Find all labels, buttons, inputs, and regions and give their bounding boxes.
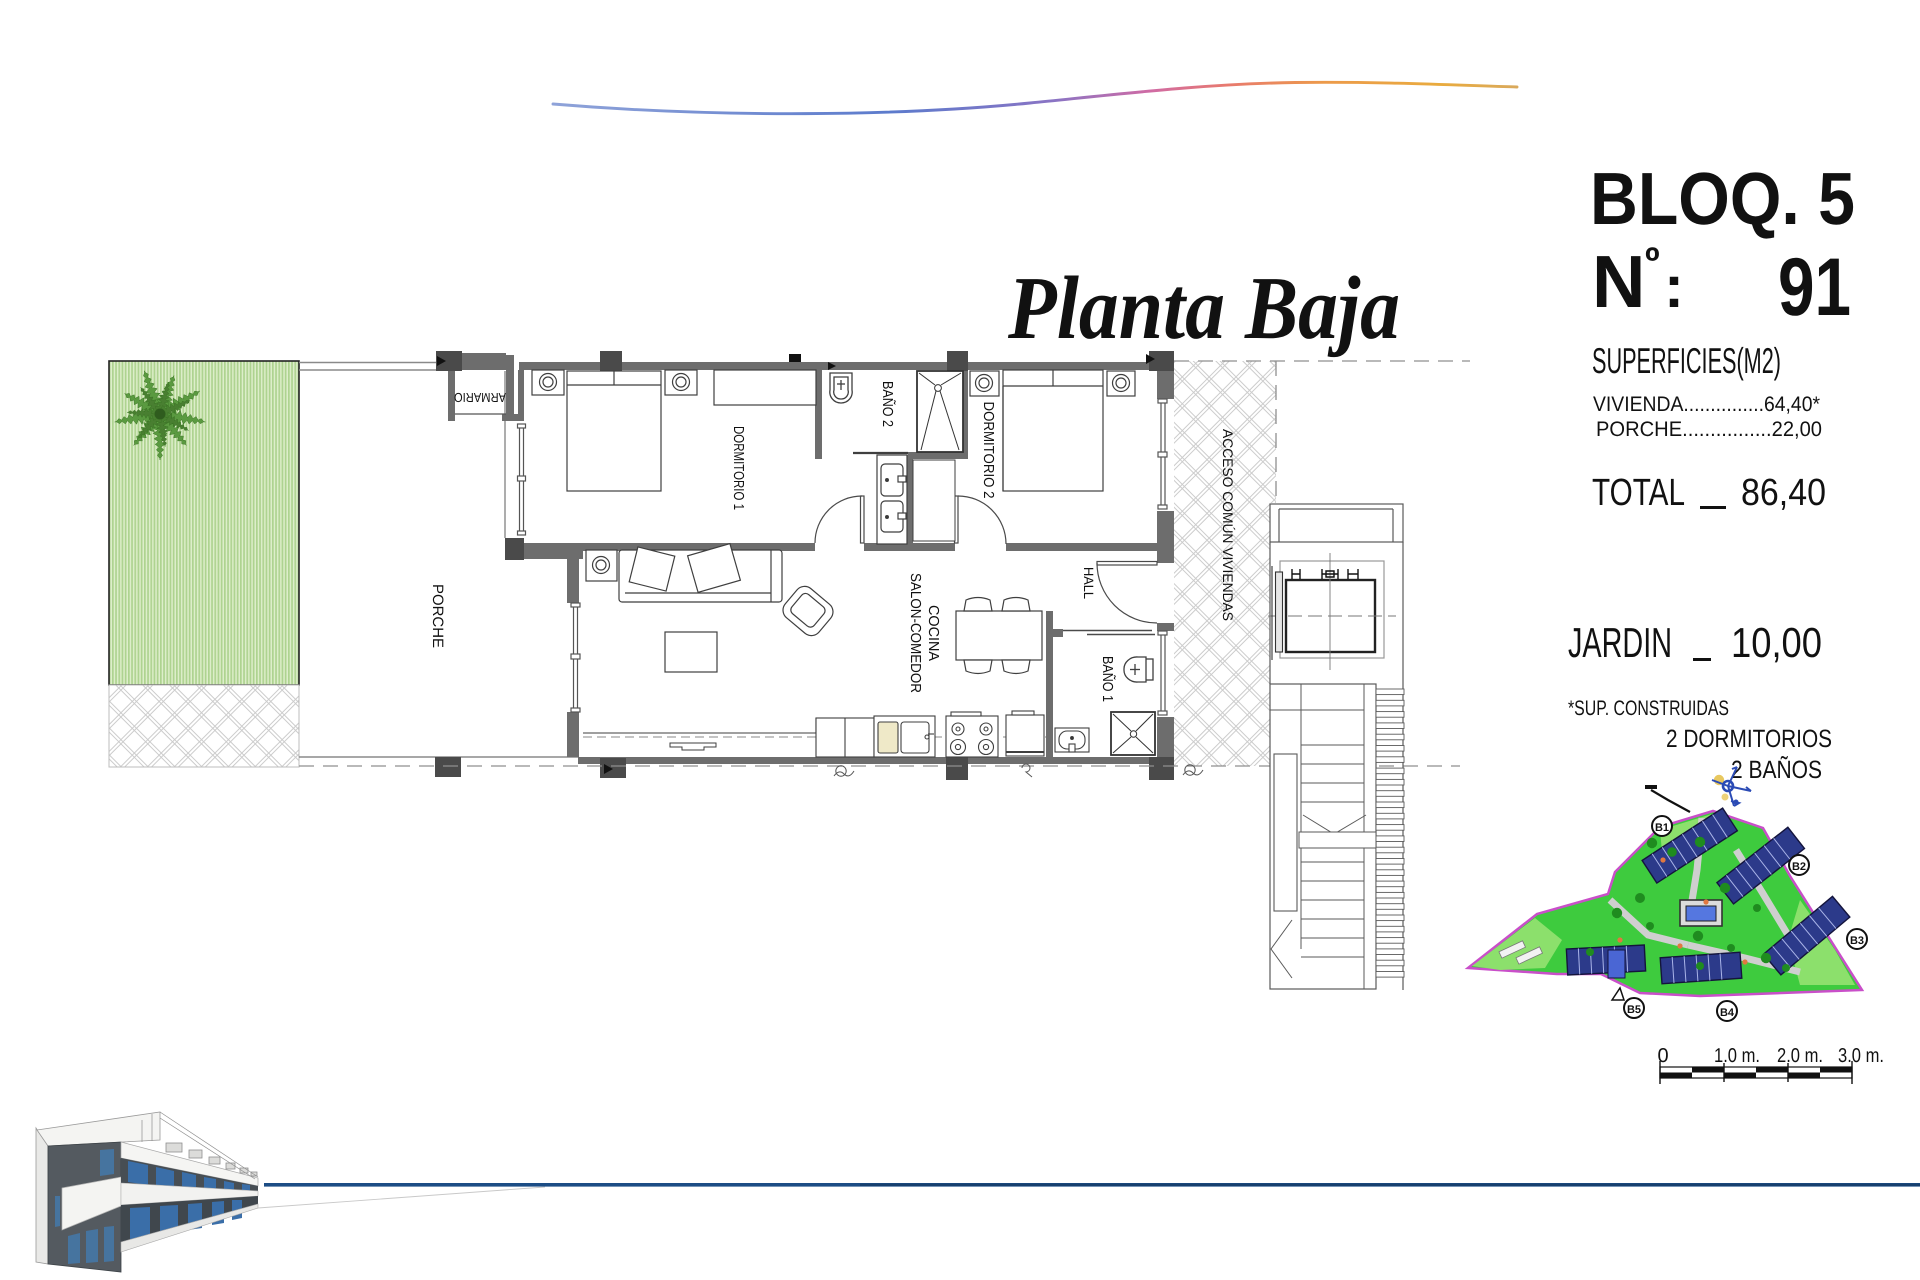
- svg-text:SALON-COMEDOR: SALON-COMEDOR: [907, 573, 923, 693]
- svg-text:Planta Baja: Planta Baja: [1007, 259, 1400, 358]
- svg-text:3.0 m.: 3.0 m.: [1838, 1045, 1884, 1067]
- svg-text:DORMITORIO 2: DORMITORIO 2: [980, 402, 996, 499]
- svg-text:SUPERFICIES(M2): SUPERFICIES(M2): [1592, 340, 1781, 381]
- svg-text:91: 91: [1778, 242, 1851, 333]
- svg-text:ACCESO COMÚN VIVIENDAS: ACCESO COMÚN VIVIENDAS: [1220, 429, 1236, 621]
- svg-text:10,00: 10,00: [1731, 619, 1822, 666]
- svg-text:DORMITORIO 1: DORMITORIO 1: [730, 426, 746, 510]
- svg-text:BAÑO 2: BAÑO 2: [879, 381, 896, 427]
- svg-text:PORCHE................22,00: PORCHE................22,00: [1596, 418, 1822, 441]
- svg-text:B5: B5: [1627, 1004, 1641, 1016]
- svg-text:VIVIENDA...............64,40*: VIVIENDA...............64,40*: [1593, 393, 1820, 416]
- svg-text:BAÑO 1: BAÑO 1: [1099, 656, 1116, 702]
- svg-text:B4: B4: [1720, 1007, 1735, 1019]
- svg-text:1.0 m.: 1.0 m.: [1714, 1045, 1760, 1067]
- svg-text:86,40: 86,40: [1741, 472, 1826, 514]
- svg-text:B2: B2: [1792, 861, 1806, 873]
- svg-text:0: 0: [1657, 1045, 1668, 1067]
- svg-text:º: º: [1645, 240, 1660, 284]
- svg-text:2 BAÑOS: 2 BAÑOS: [1731, 756, 1822, 784]
- svg-text::: :: [1664, 253, 1684, 320]
- svg-text:COCINA: COCINA: [925, 605, 941, 661]
- svg-text:B1: B1: [1655, 822, 1669, 834]
- svg-text:PORCHE: PORCHE: [429, 584, 446, 648]
- svg-text:2.0 m.: 2.0 m.: [1777, 1045, 1823, 1067]
- svg-text:BLOQ. 5: BLOQ. 5: [1590, 157, 1855, 240]
- svg-text:*SUP. CONSTRUIDAS: *SUP. CONSTRUIDAS: [1568, 697, 1729, 720]
- svg-text:ARMARIO: ARMARIO: [454, 390, 506, 405]
- svg-text:B3: B3: [1850, 935, 1864, 947]
- svg-text:N: N: [1592, 240, 1645, 323]
- svg-text:TOTAL: TOTAL: [1592, 472, 1685, 514]
- svg-text:HALL: HALL: [1081, 567, 1096, 599]
- svg-text:2 DORMITORIOS: 2 DORMITORIOS: [1666, 725, 1832, 753]
- svg-text:JARDIN: JARDIN: [1568, 619, 1672, 666]
